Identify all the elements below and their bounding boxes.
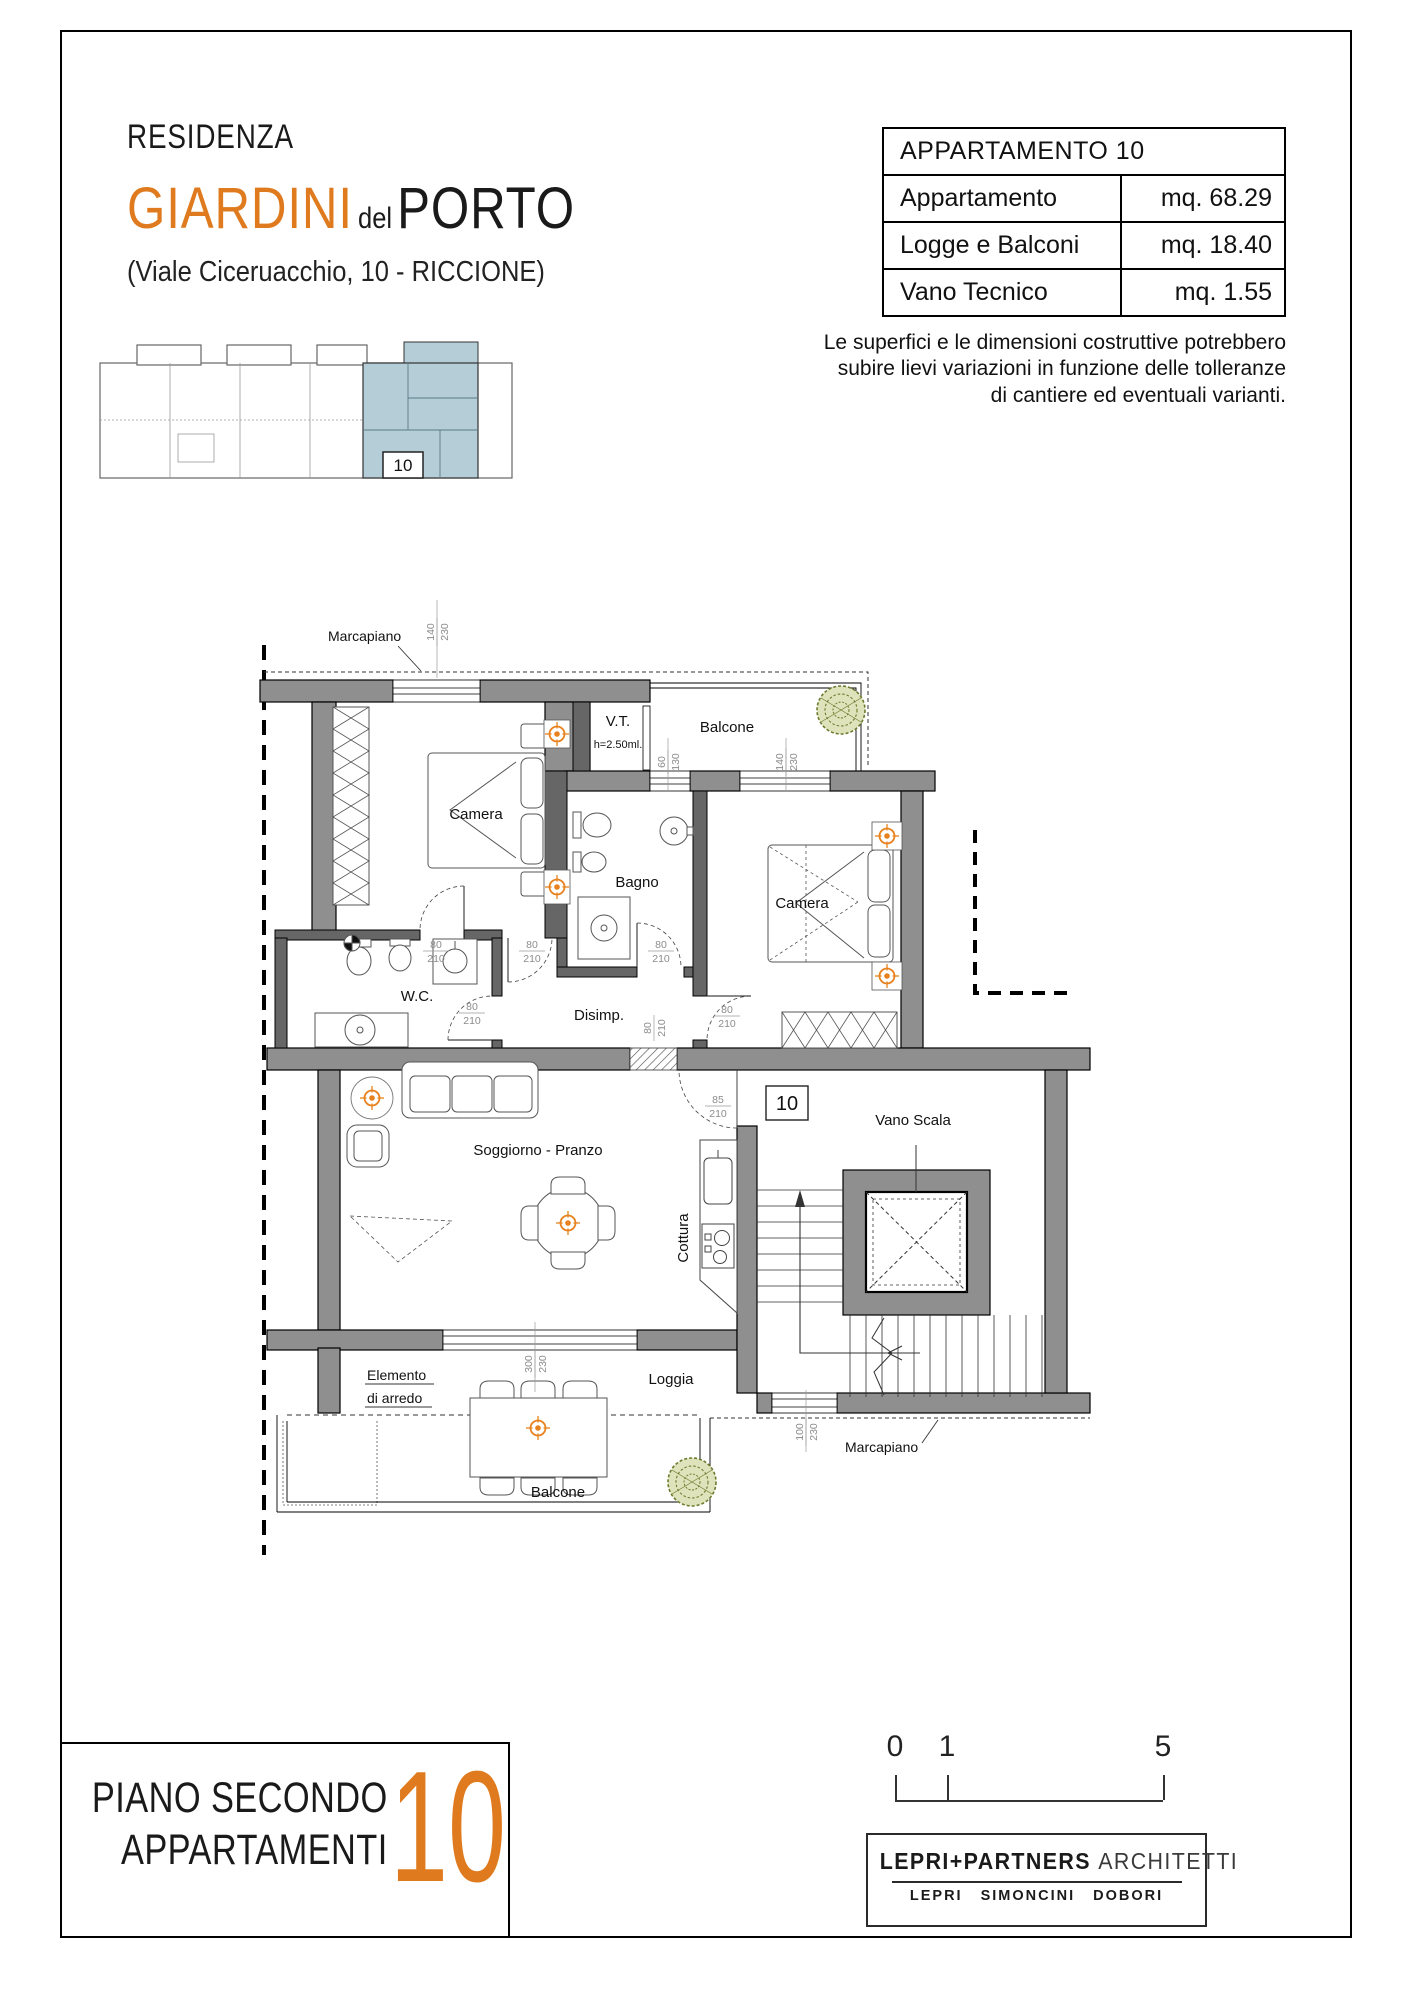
sofa bbox=[402, 1062, 538, 1118]
label-balcone-bottom: Balcone bbox=[531, 1484, 585, 1501]
firm-divider bbox=[892, 1881, 1182, 1883]
svg-text:210: 210 bbox=[709, 1108, 727, 1120]
wc-fixtures bbox=[315, 935, 477, 1047]
svg-text:80: 80 bbox=[430, 939, 442, 951]
architect-box: LEPRI+PARTNERS ARCHITETTI LEPRISIMONCINI… bbox=[866, 1833, 1207, 1927]
svg-text:60: 60 bbox=[656, 756, 668, 768]
row-label: Logge e Balconi bbox=[884, 223, 1122, 268]
scale-tick-label: 0 bbox=[887, 1730, 904, 1764]
svg-text:130: 130 bbox=[670, 753, 682, 771]
elevator bbox=[866, 1145, 967, 1292]
label-loggia: Loggia bbox=[648, 1371, 694, 1388]
key-plan: 10 bbox=[90, 335, 520, 485]
table-header: APPARTAMENTO 10 bbox=[884, 129, 1284, 176]
scale-tick-label: 1 bbox=[939, 1730, 956, 1764]
project-title: GIARDINIdelPORTO bbox=[127, 175, 603, 242]
label-marcapiano-bottom: Marcapiano bbox=[845, 1439, 918, 1455]
label-vt: V.T. bbox=[606, 713, 630, 730]
table-row: Vano Tecnico mq. 1.55 bbox=[884, 270, 1284, 315]
svg-text:80: 80 bbox=[655, 939, 667, 951]
label-cottura: Cottura bbox=[675, 1213, 692, 1263]
label-camera-right: Camera bbox=[775, 895, 829, 912]
svg-text:230: 230 bbox=[808, 1423, 820, 1441]
svg-text:210: 210 bbox=[652, 953, 670, 965]
partner-name: DOBORI bbox=[1093, 1888, 1163, 1904]
floor-unit-number: 10 bbox=[390, 1748, 506, 1906]
svg-text:210: 210 bbox=[523, 953, 541, 965]
label-balcone-top: Balcone bbox=[700, 719, 754, 736]
label-soggiorno: Soggiorno - Pranzo bbox=[473, 1142, 602, 1159]
unit-badge: 10 bbox=[766, 1086, 808, 1120]
svg-text:210: 210 bbox=[463, 1015, 481, 1027]
label-camera-left: Camera bbox=[449, 806, 503, 823]
wardrobe-left bbox=[333, 707, 369, 905]
armchair bbox=[347, 1125, 389, 1167]
svg-text:80: 80 bbox=[466, 1001, 478, 1013]
plant-bottom bbox=[668, 1458, 716, 1506]
disclaimer-line: subire lievi variazioni in funzione dell… bbox=[690, 356, 1286, 382]
row-label: Vano Tecnico bbox=[884, 270, 1122, 315]
kitchen-counter bbox=[700, 1140, 737, 1313]
passage-hatch bbox=[630, 1048, 677, 1070]
firm-bold: LEPRI+PARTNERS bbox=[880, 1848, 1091, 1874]
svg-text:140: 140 bbox=[425, 623, 437, 641]
svg-text:210: 210 bbox=[427, 953, 445, 965]
svg-text:300: 300 bbox=[523, 1355, 535, 1373]
floor-title: PIANO SECONDO APPARTAMENTI bbox=[92, 1772, 388, 1877]
floorplan-sheet: { "header": { "residenza": "RESIDENZA", … bbox=[0, 0, 1413, 2000]
row-value: mq. 18.40 bbox=[1122, 223, 1284, 268]
label-marcapiano-top: Marcapiano bbox=[328, 628, 401, 644]
svg-text:100: 100 bbox=[794, 1423, 806, 1441]
label-elemento-2: di arredo bbox=[367, 1390, 422, 1406]
disclaimer-line: Le superfici e le dimensioni costruttive… bbox=[690, 330, 1286, 356]
partner-name: SIMONCINI bbox=[981, 1888, 1076, 1904]
floor-plan: 140230 60130 140230 80210 80210 80210 80… bbox=[205, 485, 1095, 1560]
title-del: del bbox=[358, 202, 392, 235]
svg-text:140: 140 bbox=[774, 753, 786, 771]
svg-text:230: 230 bbox=[439, 623, 451, 641]
title-porto: PORTO bbox=[397, 176, 575, 241]
wardrobe-right bbox=[782, 1012, 897, 1048]
label-vt-height: h=2.50ml. bbox=[594, 739, 643, 751]
apartment-info-table: APPARTAMENTO 10 Appartamento mq. 68.29 L… bbox=[882, 127, 1286, 317]
floor-line-1: PIANO SECONDO bbox=[92, 1772, 388, 1824]
unit-badge-number: 10 bbox=[776, 1093, 798, 1115]
svg-text:230: 230 bbox=[788, 753, 800, 771]
residenza-label: RESIDENZA bbox=[127, 118, 586, 157]
disclaimer: Le superfici e le dimensioni costruttive… bbox=[690, 330, 1286, 409]
label-elemento-1: Elemento bbox=[367, 1367, 426, 1383]
scale-tick bbox=[947, 1775, 949, 1800]
decor-triangle bbox=[350, 1216, 452, 1262]
scale-rule bbox=[895, 1800, 1163, 1802]
svg-text:230: 230 bbox=[537, 1355, 549, 1373]
scale-bar: 0 1 5 bbox=[880, 1730, 1180, 1810]
title-giardini: GIARDINI bbox=[127, 176, 353, 241]
row-value: mq. 1.55 bbox=[1122, 270, 1284, 315]
firm-name: LEPRI+PARTNERS ARCHITETTI bbox=[880, 1848, 1193, 1875]
key-plan-unit-badge: 10 bbox=[383, 452, 423, 478]
svg-text:210: 210 bbox=[656, 1019, 668, 1037]
svg-text:80: 80 bbox=[721, 1004, 733, 1016]
firm-light: ARCHITETTI bbox=[1098, 1848, 1238, 1874]
table-row: Logge e Balconi mq. 18.40 bbox=[884, 223, 1284, 270]
partner-name: LEPRI bbox=[910, 1888, 963, 1904]
scale-tick bbox=[895, 1775, 897, 1800]
svg-text:80: 80 bbox=[526, 939, 538, 951]
partners: LEPRISIMONCINIDOBORI bbox=[868, 1888, 1205, 1904]
row-value: mq. 68.29 bbox=[1122, 176, 1284, 221]
row-label: Appartamento bbox=[884, 176, 1122, 221]
label-bagno: Bagno bbox=[615, 874, 658, 891]
label-disimp: Disimp. bbox=[574, 1007, 624, 1024]
floor-line-2: APPARTAMENTI bbox=[92, 1824, 388, 1876]
label-vano-scala: Vano Scala bbox=[875, 1112, 951, 1129]
table-row: Appartamento mq. 68.29 bbox=[884, 176, 1284, 223]
svg-text:210: 210 bbox=[718, 1018, 736, 1030]
label-wc: W.C. bbox=[401, 988, 434, 1005]
header: RESIDENZA GIARDINIdelPORTO (Viale Ciceru… bbox=[127, 118, 687, 289]
scale-tick-label: 5 bbox=[1155, 1730, 1172, 1764]
svg-text:85: 85 bbox=[712, 1094, 724, 1106]
plant-top bbox=[817, 686, 865, 734]
key-plan-unit-number: 10 bbox=[394, 456, 413, 475]
disclaimer-line: di cantiere ed eventuali varianti. bbox=[690, 383, 1286, 409]
project-address: (Viale Ciceruacchio, 10 - RICCIONE) bbox=[127, 256, 620, 289]
svg-text:80: 80 bbox=[642, 1022, 654, 1034]
scale-tick bbox=[1163, 1775, 1165, 1800]
